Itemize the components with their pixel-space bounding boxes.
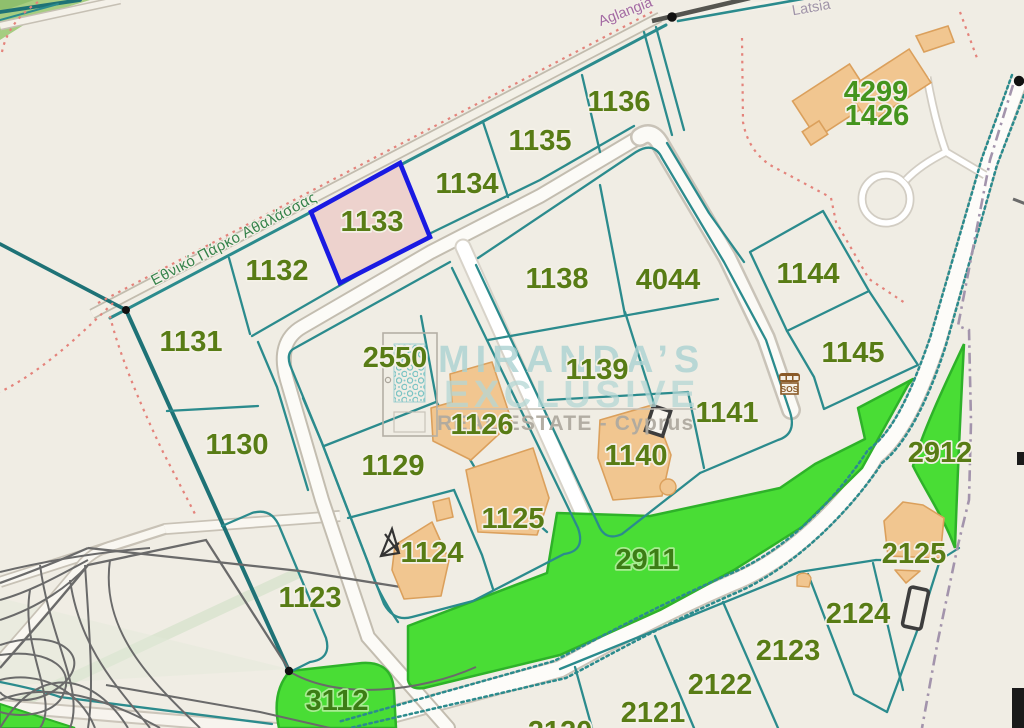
svg-text:1144: 1144 <box>777 258 840 290</box>
svg-text:1138: 1138 <box>526 263 589 295</box>
svg-text:1130: 1130 <box>206 429 269 461</box>
svg-text:2550: 2550 <box>363 342 428 374</box>
svg-text:1141: 1141 <box>696 397 759 429</box>
svg-text:2912: 2912 <box>908 437 973 469</box>
svg-text:2120: 2120 <box>528 716 593 728</box>
svg-text:1125: 1125 <box>482 503 545 535</box>
svg-text:2123: 2123 <box>756 635 821 667</box>
svg-text:1133: 1133 <box>341 206 404 238</box>
svg-text:SOS: SOS <box>781 384 799 394</box>
svg-text:2911: 2911 <box>616 544 679 576</box>
svg-text:1145: 1145 <box>822 337 885 369</box>
svg-text:1136: 1136 <box>588 86 651 118</box>
svg-text:2124: 2124 <box>826 598 891 630</box>
svg-text:1135: 1135 <box>509 125 572 157</box>
svg-text:1129: 1129 <box>362 450 425 482</box>
svg-text:1123: 1123 <box>279 582 342 614</box>
svg-text:3112: 3112 <box>306 685 369 717</box>
svg-text:1126: 1126 <box>451 409 514 441</box>
svg-text:1140: 1140 <box>605 440 668 472</box>
svg-text:1134: 1134 <box>436 168 499 200</box>
svg-text:1426: 1426 <box>845 100 910 132</box>
svg-text:1131: 1131 <box>160 326 223 358</box>
svg-text:2125: 2125 <box>882 538 947 570</box>
svg-text:1124: 1124 <box>401 537 464 569</box>
svg-text:1132: 1132 <box>246 255 309 287</box>
svg-text:1139: 1139 <box>566 354 629 386</box>
svg-text:4044: 4044 <box>636 264 701 296</box>
svg-text:2121: 2121 <box>621 697 686 728</box>
svg-text:2122: 2122 <box>688 669 753 701</box>
